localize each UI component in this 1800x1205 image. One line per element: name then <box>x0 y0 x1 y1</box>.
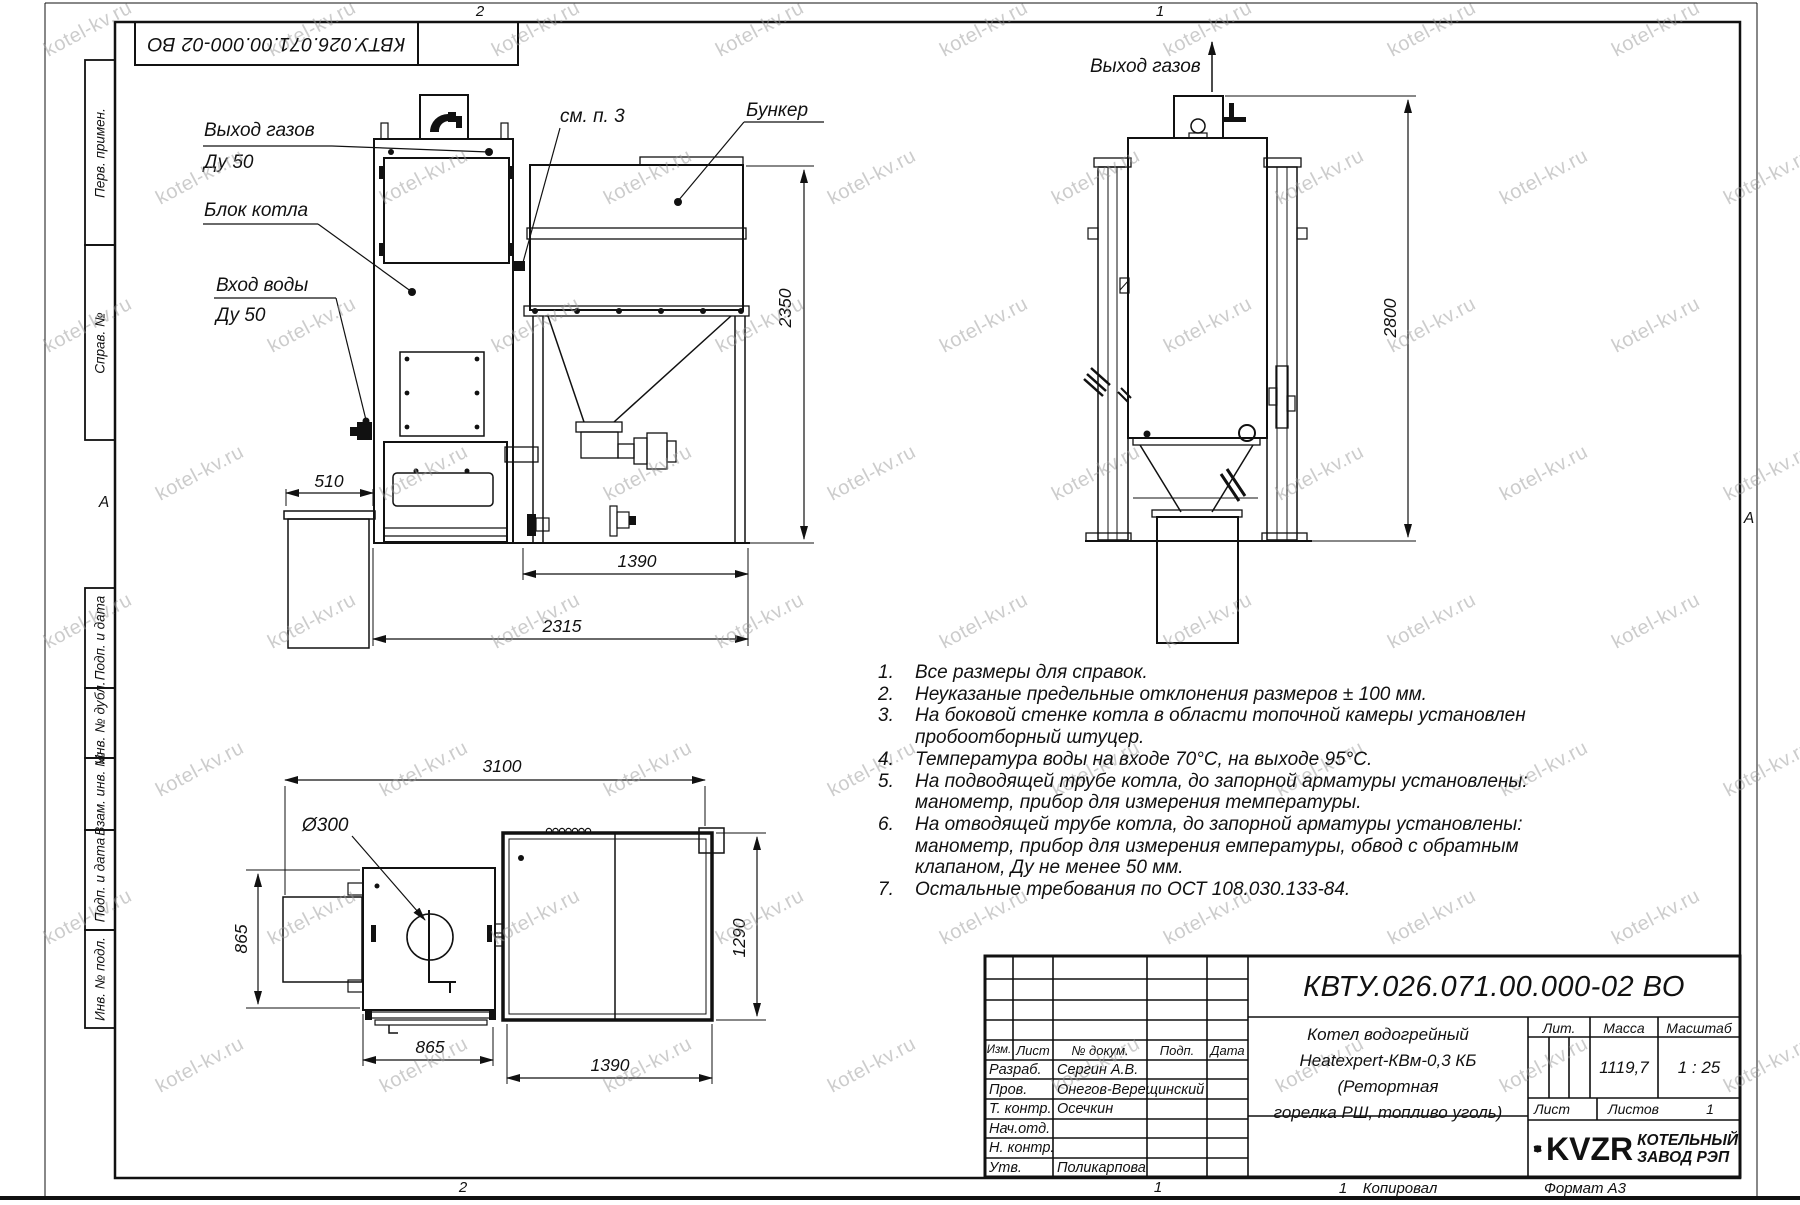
sign-role-razrab: Разраб. <box>989 1061 1051 1078</box>
stamp-label: Взам. инв. № <box>93 752 108 836</box>
product-name-line2: Heatexpert-КВм-0,3 КБ (Ретортная <box>1250 1048 1526 1100</box>
col-doc: № докум. <box>1053 1041 1147 1059</box>
note-text: На боковой стенке котла в области топочн… <box>915 705 1554 748</box>
callout-gas-outlet-side: Выход газов <box>1090 56 1201 77</box>
boiler-lower-door <box>393 473 493 506</box>
note-number: 4. <box>878 749 915 771</box>
sign-name-nachotd <box>1057 1120 1207 1137</box>
callout-water-inlet-dn: Ду 50 <box>214 305 266 326</box>
title-designation: КВТУ.026.071.00.000-02 ВО <box>1250 960 1738 1015</box>
dim-510: 510 <box>314 471 343 491</box>
inverted-designation: КВТУ.026.071.00.000-02 ВО <box>147 32 405 55</box>
side-boiler-body <box>1128 138 1267 438</box>
front-view: Выход газов Ду 50 Блок котла Вход воды Д… <box>202 95 824 648</box>
sign-role-prov: Пров. <box>989 1081 1051 1098</box>
sign-role-nkontr: Н. контр. <box>989 1139 1051 1156</box>
dim-2350: 2350 <box>775 288 795 328</box>
feeder-motor <box>647 433 667 469</box>
drawing-sheet: { "sheet": { "watermark_text": "kotel-kv… <box>0 0 1800 1200</box>
bunker-body <box>530 165 743 310</box>
dim-865-bottom: 865 <box>415 1037 444 1057</box>
boiler-lower-box <box>384 442 507 542</box>
dim-865-left: 865 <box>231 924 251 953</box>
note-item: 7.Остальные требования по ОСТ 108.030.13… <box>878 879 1554 901</box>
boiler-upper-door <box>384 158 509 263</box>
col-izm: Изм. <box>985 1041 1013 1059</box>
company-logo-cell: KVZR КОТЕЛЬНЫЙ ЗАВОД РЭП <box>1533 1122 1738 1176</box>
sheets-value: 1 <box>1695 1098 1725 1119</box>
product-name-line3: горелка РШ, топливо уголь) <box>1250 1100 1526 1126</box>
callout-see-note: см. п. 3 <box>560 106 625 127</box>
note-item: 5.На подводящей трубе котла, до запорной… <box>878 771 1554 814</box>
company-line1: КОТЕЛЬНЫЙ <box>1637 1132 1738 1149</box>
fold-marker-right: А <box>1742 510 1756 528</box>
ash-box-plan <box>283 897 362 982</box>
side-funnel <box>1140 445 1181 512</box>
stamp-label: Справ. № <box>93 312 108 373</box>
callout-bunker: Бункер <box>746 100 808 121</box>
sign-name-prov: Онегов-Верещинский <box>1057 1081 1207 1098</box>
mass-label: Масса <box>1590 1019 1658 1036</box>
stamp-perv-primen: Перв. примен. <box>85 60 115 245</box>
zone-bottom-left: 2 <box>455 1179 471 1196</box>
col-list: Лист <box>1013 1041 1053 1059</box>
product-name: Котел водогрейный Heatexpert-КВм-0,3 КБ … <box>1250 1022 1526 1126</box>
sign-role-utv: Утв. <box>989 1159 1051 1176</box>
stamp-label: Перв. примен. <box>93 108 108 198</box>
sheet-label: Лист <box>1534 1098 1594 1119</box>
bunker-plan <box>503 833 712 1020</box>
scale-label: Масштаб <box>1658 1019 1740 1036</box>
footer-format-label: Формат А3 <box>1535 1179 1635 1197</box>
dim-2315: 2315 <box>542 616 582 636</box>
boiler-body <box>374 139 513 543</box>
right-support <box>1267 167 1297 540</box>
dim-3100: 3100 <box>483 756 522 776</box>
callout-water-inlet: Вход воды <box>216 275 308 296</box>
ash-box-lid <box>284 511 375 519</box>
technical-notes: 1.Все размеры для справок. 2.Неуказаные … <box>878 662 1554 901</box>
dim-d300: Ø300 <box>301 815 349 836</box>
note-text: Остальные требования по ОСТ 108.030.133-… <box>915 879 1554 901</box>
flue-elbow-icon <box>430 114 449 132</box>
left-support <box>1098 167 1128 540</box>
zone-bottom-right: 1 <box>1150 1179 1166 1196</box>
note-text: На отводящей трубе котла, до запорной ар… <box>915 814 1554 879</box>
note-number: 1. <box>878 662 915 684</box>
product-name-line1: Котел водогрейный <box>1250 1022 1526 1048</box>
note-number: 2. <box>878 684 915 706</box>
note-text: Температура воды на входе 70°С, на выход… <box>915 749 1554 771</box>
scale-value: 1 : 25 <box>1658 1037 1740 1098</box>
company-name: КОТЕЛЬНЫЙ ЗАВОД РЭП <box>1637 1132 1738 1166</box>
company-line2: ЗАВОД РЭП <box>1637 1149 1738 1166</box>
ash-box <box>288 519 369 648</box>
stamp-sprav-no: Справ. № <box>85 245 115 440</box>
side-view: Выход газов 2800 <box>1084 42 1416 643</box>
footer-sheet-no: 1 <box>1333 1179 1353 1197</box>
side-chimney-box <box>1174 96 1223 138</box>
stamp-podp-data-1: Подп. и дата <box>85 588 115 688</box>
bunker-funnel <box>548 316 584 422</box>
sign-name-tkontr: Осечкин <box>1057 1100 1207 1117</box>
lit-label: Лит. <box>1528 1019 1590 1036</box>
zone-top-right: 1 <box>1152 3 1168 20</box>
note-number: 5. <box>878 771 915 814</box>
sheets-label: Листов <box>1608 1098 1688 1119</box>
dim-2800: 2800 <box>1380 298 1400 338</box>
control-panel <box>400 352 484 436</box>
stamp-inv-podl: Инв. № подл. <box>85 930 115 1028</box>
note-text: Все размеры для справок. <box>915 662 1554 684</box>
note-text: На подводящей трубе котла, до запорной а… <box>915 771 1554 814</box>
stamp-inv-dubl: Инв. № дубл. <box>85 688 115 758</box>
col-data: Дата <box>1207 1041 1248 1059</box>
note-item: 6.На отводящей трубе котла, до запорной … <box>878 814 1554 879</box>
stamp-podp-data-2: Подп. и дата <box>85 830 115 930</box>
sign-role-nachotd: Нач.отд. <box>989 1120 1051 1137</box>
kvzr-logo-icon <box>1533 1128 1542 1170</box>
col-podp: Подп. <box>1147 1041 1207 1059</box>
dim-1290: 1290 <box>729 918 749 957</box>
fold-marker-left: А <box>96 494 112 512</box>
zone-top-left: 2 <box>472 3 488 20</box>
water-inlet-flange <box>357 422 372 440</box>
sign-name-razrab: Сергин А.В. <box>1057 1061 1207 1078</box>
kvzr-logo-text: KVZR <box>1546 1131 1633 1168</box>
dim-1390-front: 1390 <box>618 551 657 571</box>
note-item: 2.Неуказаные предельные отклонения разме… <box>878 684 1554 706</box>
stamp-label: Подп. и дата <box>93 596 108 681</box>
sign-name-utv: Поликарпова <box>1057 1159 1207 1176</box>
inverted-designation-cell: КВТУ.026.071.00.000-02 ВО <box>135 22 418 65</box>
note-number: 6. <box>878 814 915 879</box>
callout-gas-outlet-dn: Ду 50 <box>202 152 254 173</box>
note-item: 3.На боковой стенке котла в области топо… <box>878 705 1554 748</box>
note-number: 7. <box>878 879 915 901</box>
mass-value: 1119,7 <box>1590 1037 1658 1098</box>
stamp-vzam-inv: Взам. инв. № <box>85 758 115 830</box>
sign-name-nkontr <box>1057 1139 1207 1156</box>
note-item: 4.Температура воды на входе 70°С, на вых… <box>878 749 1554 771</box>
stamp-label: Инв. № подл. <box>93 937 108 1021</box>
plan-view: 3100 Ø300 865 865 1390 1290 <box>231 756 766 1084</box>
callout-boiler-block: Блок котла <box>204 200 308 221</box>
note-text: Неуказаные предельные отклонения размеро… <box>915 684 1554 706</box>
sign-role-tkontr: Т. контр. <box>989 1100 1051 1117</box>
ash-bin <box>1157 517 1238 643</box>
note-number: 3. <box>878 705 915 748</box>
stamp-label: Подп. и дата <box>93 838 108 923</box>
footer-copied-label: Копировал <box>1355 1179 1445 1197</box>
dim-1390-plan: 1390 <box>591 1055 630 1075</box>
callout-gas-outlet: Выход газов <box>204 120 315 141</box>
note-item: 1.Все размеры для справок. <box>878 662 1554 684</box>
